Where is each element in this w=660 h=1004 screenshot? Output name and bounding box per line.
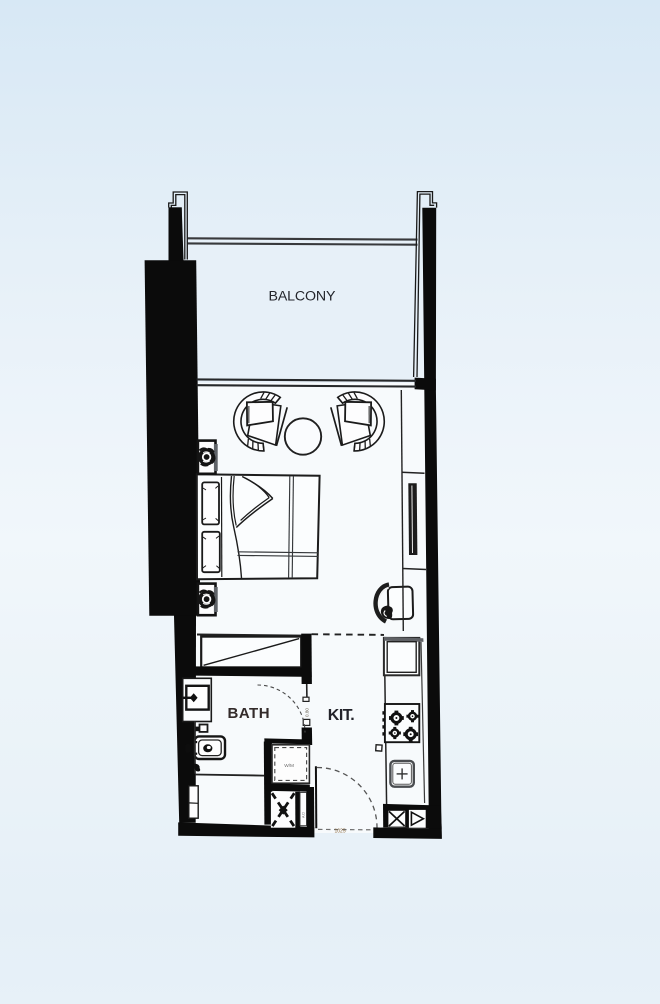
svg-text:0.80: 0.80 [305,708,310,717]
svg-text:KIT.: KIT. [328,707,355,724]
svg-text:A.D: A.D [302,812,306,818]
svg-text:BATH: BATH [228,705,271,722]
svg-text:W/M: W/M [284,763,294,769]
svg-text:1025: 1025 [335,829,346,835]
svg-text:BALCONY: BALCONY [269,289,336,305]
